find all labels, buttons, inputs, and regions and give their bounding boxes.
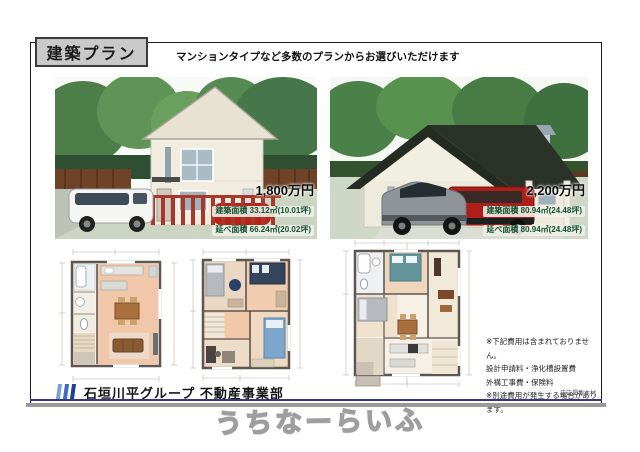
floor-plan-a-1f xyxy=(57,247,179,385)
price-a: 1,800万円 xyxy=(212,180,314,199)
flyer-page: 建築プラン マンションタイプなど多数のプランからお選びいただけます xyxy=(0,0,640,452)
note-line-1: ※下記費用は含まれておりません。 xyxy=(486,335,598,362)
floor-plan-b xyxy=(342,238,474,390)
note-line-2: 設計申請料・浄化槽設置費 xyxy=(486,362,598,376)
price-block-a: 1,800万円 建築面積 33.12㎡(10.01坪) 延べ面積 66.24㎡(… xyxy=(212,180,314,237)
floor-area-a: 延べ面積 66.24㎡(20.02坪) xyxy=(212,225,314,236)
floor-area-b: 延べ面積 80.94㎡(24.48坪) xyxy=(483,225,585,236)
price-block-b: 2,200万円 建築面積 80.94㎡(24.48坪) 延べ面積 80.94㎡(… xyxy=(483,180,585,237)
building-area-b: 建築面積 80.94㎡(24.48坪) xyxy=(483,206,585,217)
building-area-a: 建築面積 33.12㎡(10.01坪) xyxy=(212,206,314,217)
page-title-text: 建築プラン xyxy=(46,40,136,64)
house-rendering-a: 1,800万円 建築面積 33.12㎡(10.01坪) 延べ面積 66.24㎡(… xyxy=(55,77,317,239)
house-rendering-b: 2,200万円 建築面積 80.94㎡(24.48坪) 延べ面積 80.94㎡(… xyxy=(330,77,588,239)
price-b: 2,200万円 xyxy=(483,180,585,199)
company-logo-icon xyxy=(56,384,76,399)
page-title: 建築プラン xyxy=(35,37,148,67)
note-line-3: 外構工事費・保険料 xyxy=(486,376,598,390)
page-subtitle: マンションタイプなど多数のプランからお選びいただけます xyxy=(176,49,460,64)
floor-plan-a-2f xyxy=(188,247,305,385)
